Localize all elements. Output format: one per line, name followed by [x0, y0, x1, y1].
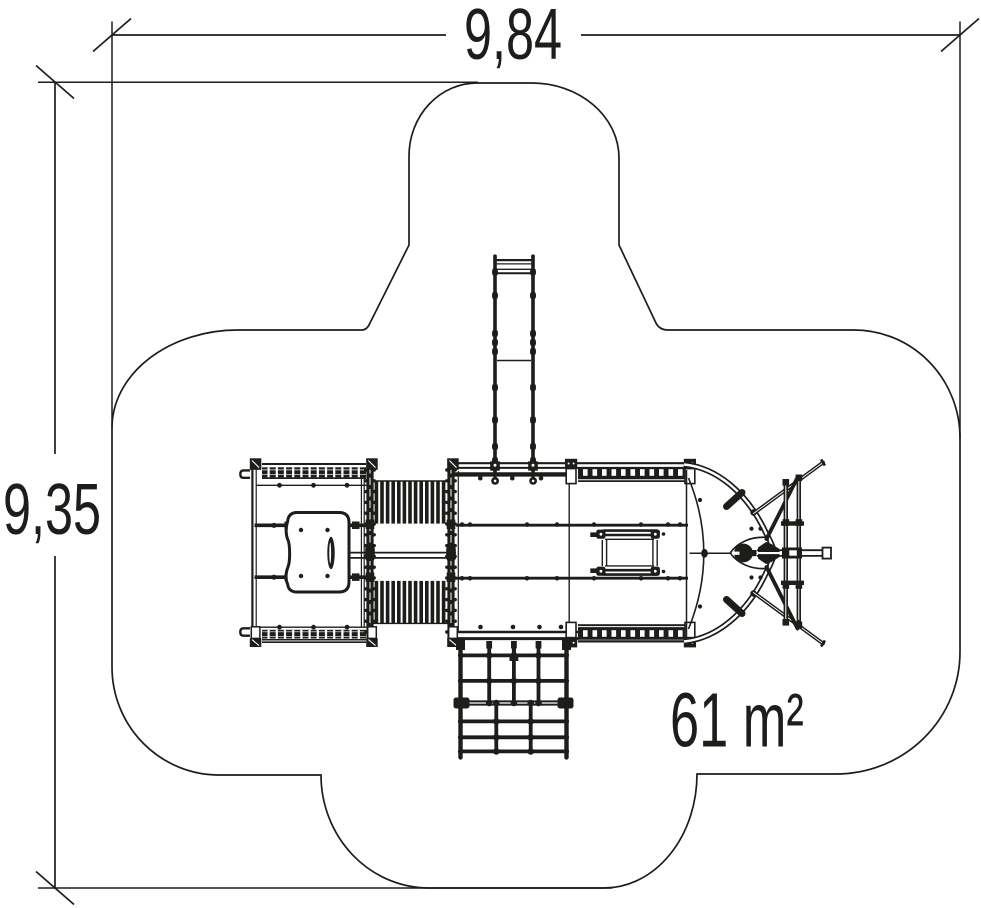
- svg-text:9,84: 9,84: [464, 0, 562, 75]
- svg-text:9,35: 9,35: [3, 470, 101, 550]
- svg-text:61 m²: 61 m²: [670, 676, 804, 763]
